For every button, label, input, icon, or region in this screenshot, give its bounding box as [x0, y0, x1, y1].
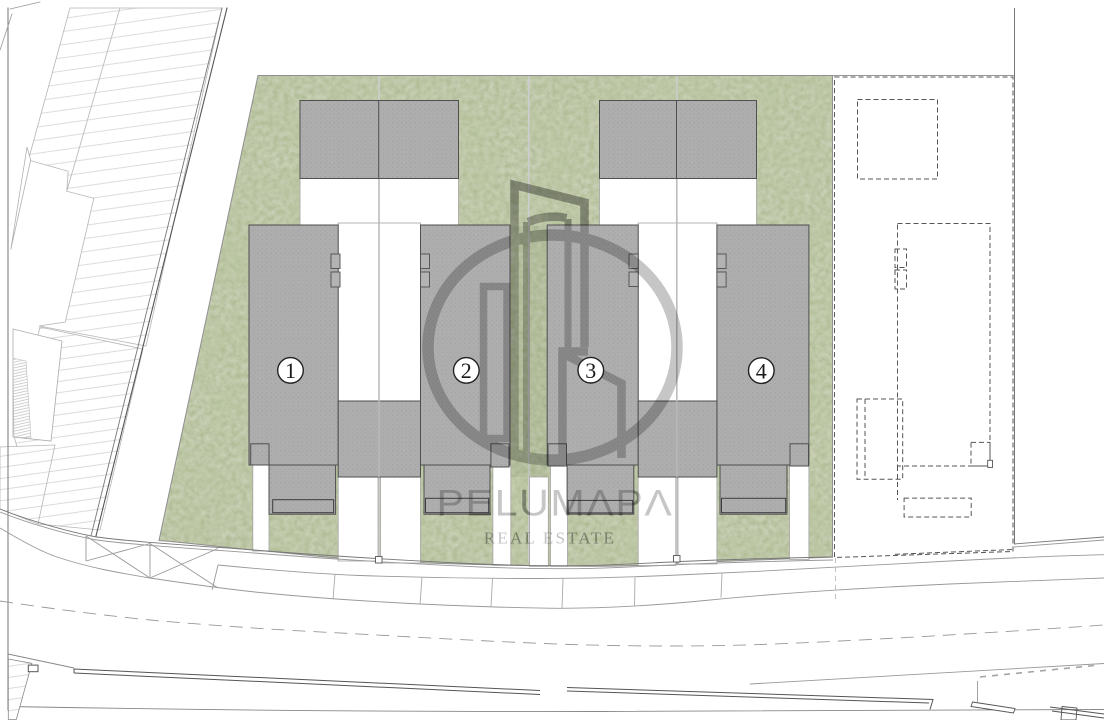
svg-text:PELUMΛPΛ: PELUMΛPΛ: [436, 483, 673, 524]
svg-text:1: 1: [285, 358, 296, 383]
svg-text:3: 3: [585, 358, 596, 383]
svg-text:4: 4: [756, 358, 767, 383]
svg-text:REAL ESTATE: REAL ESTATE: [484, 529, 616, 548]
svg-text:2: 2: [461, 358, 472, 383]
